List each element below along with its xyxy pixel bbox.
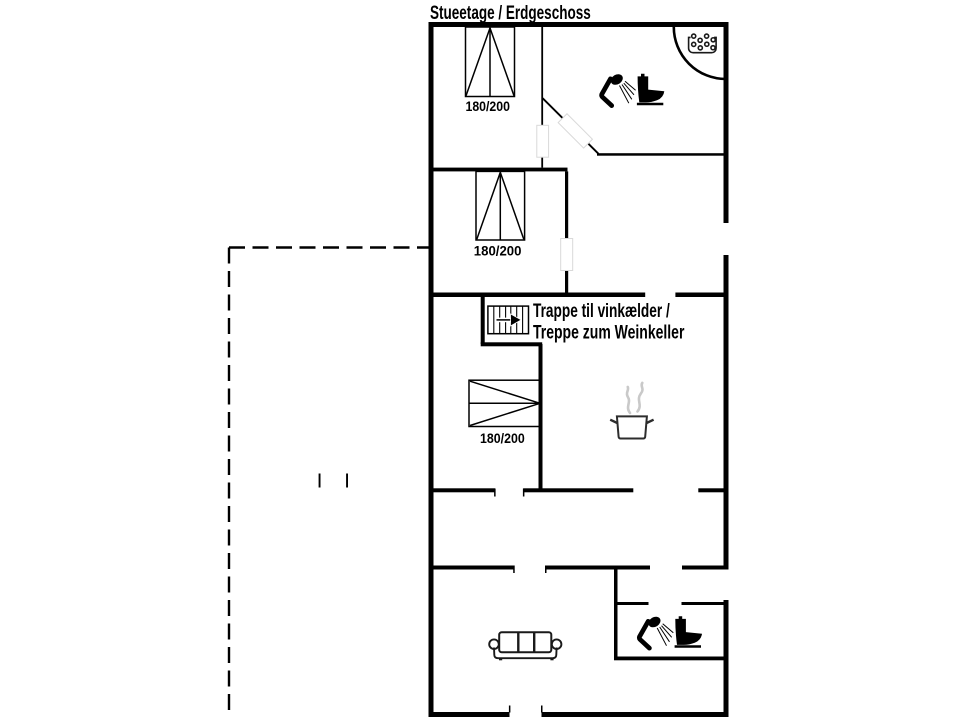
svg-text:180/200: 180/200 [466,98,510,114]
svg-text:Trappe til vinkælder /: Trappe til vinkælder / [533,300,670,322]
svg-text:180/200: 180/200 [474,243,522,258]
svg-text:180/200: 180/200 [480,430,525,446]
svg-text:Stueetage / Erdgeschoss: Stueetage / Erdgeschoss [430,2,591,24]
svg-text:Treppe zum Weinkeller: Treppe zum Weinkeller [533,321,685,343]
